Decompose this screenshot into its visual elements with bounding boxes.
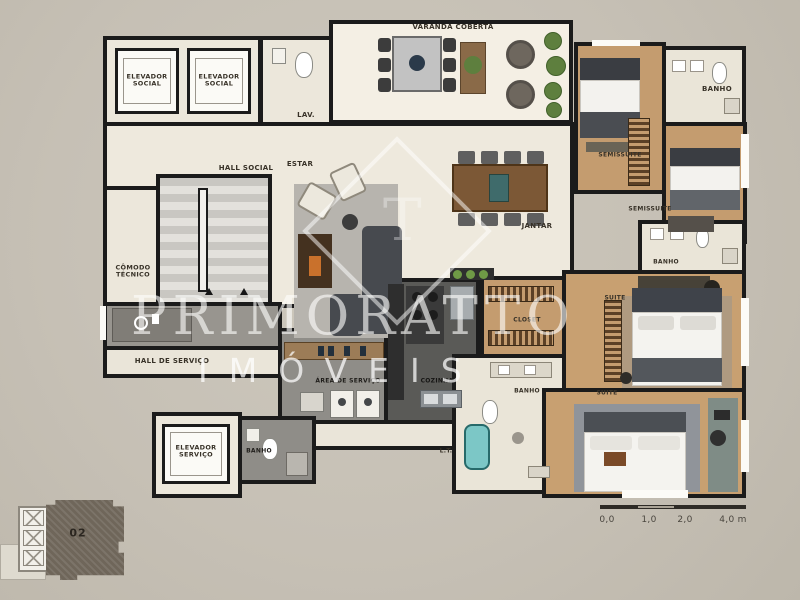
bathtub — [464, 424, 490, 470]
sink-basin — [498, 365, 510, 375]
label-suite-master: SUITE — [596, 391, 617, 398]
label-banho-master: BANHO — [514, 389, 540, 396]
sink-basin — [246, 428, 260, 442]
desk-chair — [710, 430, 726, 446]
wall-divider — [258, 40, 263, 122]
plant — [544, 32, 562, 50]
breakfast-tray — [604, 452, 626, 466]
platter — [409, 55, 425, 71]
chair — [443, 58, 456, 72]
bed-headboard — [584, 412, 686, 432]
bed-headboard — [632, 288, 722, 312]
scale-tick-1: 1,0 — [641, 515, 656, 525]
sink-basin — [424, 394, 438, 404]
brand-watermark: PRIMORATTO — [131, 286, 576, 347]
plant — [466, 270, 475, 279]
plant — [546, 102, 562, 118]
chair — [443, 38, 456, 52]
scale-tick-2: 2,0 — [677, 515, 692, 525]
scale-tick-end: 4,0 m — [719, 515, 746, 525]
pillow — [638, 436, 680, 450]
pillow — [680, 316, 716, 330]
label-banho-suite-media: BANHO — [653, 260, 679, 267]
washer-drum — [338, 398, 346, 406]
pillow — [590, 436, 632, 450]
label-estar: ESTAR — [287, 160, 313, 168]
chair — [443, 78, 456, 92]
sink-basin — [650, 228, 664, 240]
plant — [453, 270, 462, 279]
plant — [464, 56, 482, 74]
sink-basin — [690, 60, 704, 72]
brand-monogram: T — [383, 186, 422, 254]
washer-drum — [364, 398, 372, 406]
keyplan-elevator-x — [23, 510, 44, 526]
sink-basin — [672, 60, 686, 72]
bed-blanket — [632, 358, 722, 382]
shower-bench — [528, 466, 550, 478]
laundry-tank — [300, 392, 324, 412]
bed-bench — [586, 142, 634, 152]
label-varanda: VARANDA COBERTA — [412, 23, 493, 31]
chair — [378, 58, 391, 72]
room-varanda — [329, 20, 573, 124]
sink-basin — [524, 365, 536, 375]
desk — [668, 216, 714, 232]
pillow — [638, 316, 674, 330]
toilet — [712, 62, 727, 84]
bed-headboard — [580, 58, 640, 80]
label-jantar: JANTAR — [522, 222, 553, 230]
toilet — [482, 400, 498, 424]
window — [741, 420, 749, 472]
chair — [527, 151, 544, 164]
label-semissuite-1: SEMISSUITE — [598, 153, 641, 160]
shower — [722, 248, 738, 264]
toilet — [295, 52, 313, 78]
plant — [479, 270, 488, 279]
label-banho-servico: BANHO — [246, 449, 272, 456]
label-elevador-servico: ELEVADOR SERVIÇO — [171, 445, 221, 460]
sink-basin — [443, 394, 457, 404]
chair — [504, 213, 521, 226]
plant — [544, 82, 562, 100]
plant — [546, 56, 566, 76]
shower — [724, 98, 740, 114]
pouf — [620, 372, 632, 384]
chair — [378, 38, 391, 52]
chair — [458, 151, 475, 164]
keyplan-elevator-x — [23, 530, 44, 546]
closet-ladder-shelves — [604, 300, 622, 382]
lounge-chair — [506, 80, 535, 109]
bed-blanket — [670, 190, 740, 210]
brand-watermark-sub: IMÓVEIS — [198, 351, 483, 390]
label-comodo-tecnico: CÔMODO TÉCNICO — [109, 265, 157, 280]
label-elevador-social-2: ELEVADOR SOCIAL — [196, 74, 242, 89]
shower-head — [512, 432, 524, 444]
label-elevador-social-1: ELEVADOR SOCIAL — [124, 74, 170, 89]
chair — [378, 78, 391, 92]
chair — [481, 151, 498, 164]
lounge-chair — [506, 40, 535, 69]
label-lt: L.T. — [440, 449, 453, 456]
fireplace-flame — [309, 256, 321, 276]
bed-headboard — [670, 148, 740, 166]
window — [741, 134, 749, 188]
window — [592, 40, 640, 46]
laptop — [714, 410, 730, 420]
sink — [272, 48, 286, 64]
shower — [286, 452, 308, 476]
label-semissuite-2: SEMISSUITE — [628, 207, 671, 214]
scale-bar-segment — [638, 505, 674, 509]
stairs-rail — [198, 188, 208, 292]
chair — [504, 151, 521, 164]
label-hall-social: HALL SOCIAL — [219, 164, 274, 172]
floor-plan-canvas: VARANDA COBERTA ELEVADOR SOCIAL ELEVADOR… — [0, 0, 800, 600]
scale-tick-0: 0,0 — [599, 515, 614, 525]
label-banho-superior: BANHO — [702, 85, 732, 93]
door-opening — [100, 306, 106, 340]
window — [741, 298, 749, 366]
keyplan-unit-number: 02 — [69, 528, 86, 541]
keyplan-elevator-x — [23, 550, 44, 566]
label-suite-media: SUITE — [604, 296, 625, 303]
window — [622, 490, 688, 498]
centerpiece — [489, 174, 509, 202]
label-lav: LAV. — [297, 111, 315, 119]
